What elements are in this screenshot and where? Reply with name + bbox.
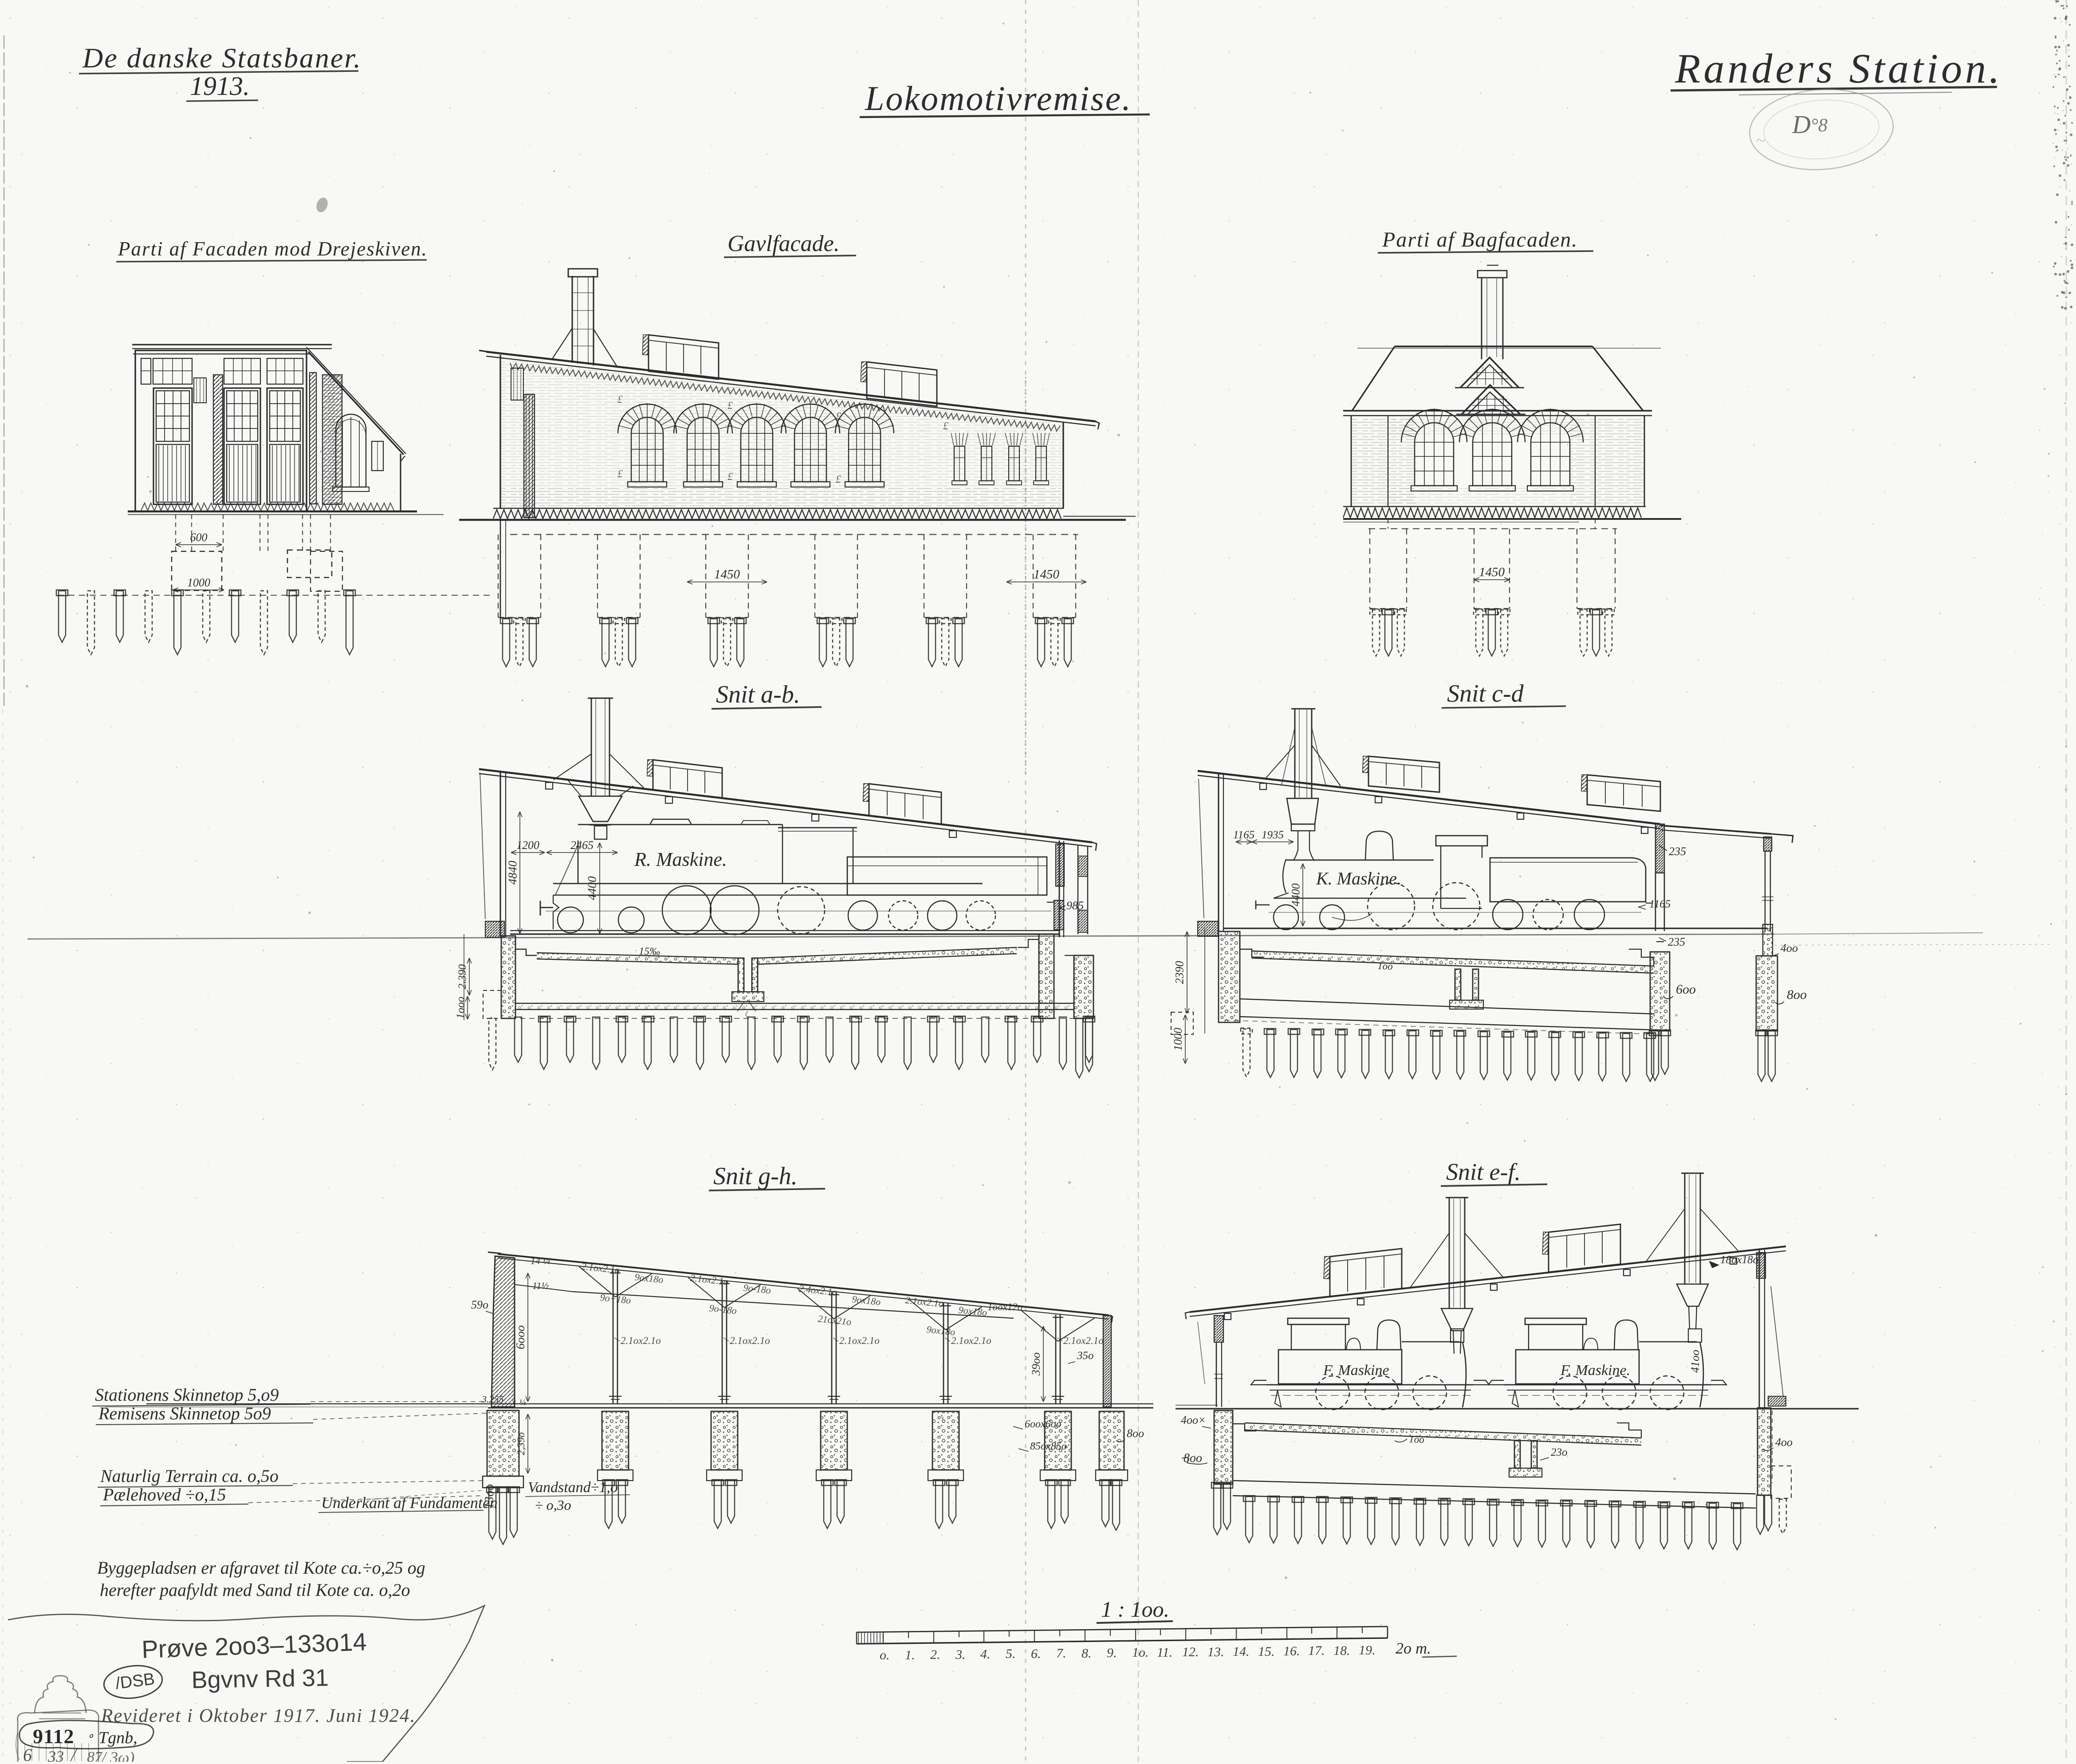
svg-text:39oo: 39oo: [1030, 1352, 1042, 1376]
svg-text:4oo: 4oo: [1781, 942, 1798, 955]
svg-text:1450: 1450: [714, 567, 740, 581]
svg-text:18.: 18.: [1333, 1643, 1350, 1658]
svg-text:35o: 35o: [1077, 1350, 1094, 1362]
svg-text:15‰: 15‰: [639, 946, 660, 958]
svg-text:7.: 7.: [1056, 1646, 1066, 1661]
svg-text:Snit g-h.: Snit g-h.: [713, 1163, 798, 1190]
svg-text:1913.: 1913.: [190, 71, 250, 101]
svg-text:85ox85o: 85ox85o: [1030, 1441, 1067, 1452]
svg-text:4.: 4.: [980, 1647, 991, 1662]
svg-text:6oox6oo: 6oox6oo: [1025, 1418, 1062, 1430]
svg-text:£: £: [617, 394, 623, 405]
svg-text:o.: o.: [880, 1648, 890, 1662]
svg-text:Stationens Skinnetop 5,o9: Stationens Skinnetop 5,o9: [95, 1385, 279, 1405]
svg-text:herefter paafyldt med Sand ti: herefter paafyldt med Sand til Kote ca. …: [100, 1580, 410, 1600]
svg-text:2.1ox2.1o: 2.1ox2.1o: [621, 1335, 661, 1346]
svg-text:Snit e-f.: Snit e-f.: [1446, 1159, 1521, 1185]
svg-text:8.: 8.: [1081, 1646, 1092, 1661]
svg-text:1000: 1000: [187, 576, 210, 589]
svg-text:11½: 11½: [532, 1280, 549, 1291]
svg-text:F. Maskine.: F. Maskine.: [1560, 1362, 1630, 1379]
svg-text:235: 235: [1669, 845, 1686, 858]
svg-text:2465: 2465: [570, 839, 594, 852]
svg-text:4400: 4400: [586, 876, 599, 900]
svg-text:£: £: [727, 400, 733, 412]
svg-text:1165: 1165: [1649, 898, 1671, 910]
svg-text:23o: 23o: [1551, 1446, 1568, 1458]
svg-text:1oo: 1oo: [1409, 1434, 1424, 1445]
svg-text:12.: 12.: [1182, 1645, 1199, 1659]
svg-text:Tgnb,: Tgnb,: [98, 1729, 138, 1747]
svg-text:235: 235: [1668, 935, 1685, 948]
svg-text:3.255: 3.255: [481, 1394, 504, 1405]
svg-text:2o m.: 2o m.: [1396, 1639, 1431, 1657]
svg-text:Parti af Facaden mod Drejeskiv: Parti af Facaden mod Drejeskiven.: [118, 238, 428, 260]
svg-text:£: £: [943, 420, 949, 432]
svg-text:6oo: 6oo: [1676, 982, 1696, 997]
svg-text:600: 600: [190, 531, 208, 544]
svg-text:11.: 11.: [1157, 1645, 1172, 1660]
svg-text:19.: 19.: [1359, 1643, 1376, 1658]
svg-text:17.: 17.: [1308, 1643, 1325, 1658]
svg-text:Byggepladsen er afgravet til K: Byggepladsen er afgravet til Kote ca.÷o,…: [97, 1558, 425, 1578]
svg-text:4840: 4840: [506, 860, 519, 885]
svg-text:Underkant af Fundamenten: Underkant af Fundamenten: [321, 1494, 498, 1512]
svg-text:D: D: [1792, 110, 1811, 139]
svg-text:2,39o: 2,39o: [515, 1432, 527, 1455]
svg-text:∘: ∘: [87, 1729, 94, 1742]
svg-text:8oo: 8oo: [1183, 1451, 1202, 1465]
svg-text:Randers Station.: Randers Station.: [1675, 46, 2003, 92]
svg-text:1ooo: 1ooo: [455, 997, 467, 1019]
svg-text:2.: 2.: [930, 1647, 940, 1662]
svg-text:2.1ox2.1o: 2.1ox2.1o: [1063, 1335, 1104, 1346]
svg-text:16.: 16.: [1283, 1644, 1300, 1658]
svg-text:÷ o,3o: ÷ o,3o: [535, 1497, 571, 1513]
svg-text:9.: 9.: [1107, 1646, 1117, 1660]
svg-text:5.: 5.: [1006, 1646, 1016, 1661]
svg-text:De danske Statsbaner.: De danske Statsbaner.: [82, 42, 362, 74]
svg-text:1 : 1oo.: 1 : 1oo.: [1101, 1597, 1169, 1622]
svg-text:R. Maskine.: R. Maskine.: [634, 849, 727, 870]
svg-text:15.: 15.: [1258, 1644, 1275, 1659]
svg-text:59o: 59o: [471, 1298, 488, 1311]
svg-text:Remisens Skinnetop 5o9: Remisens Skinnetop 5o9: [98, 1403, 271, 1423]
svg-text:13oo: 13oo: [483, 1484, 496, 1509]
svg-text:Bgvnv Rd 31: Bgvnv Rd 31: [191, 1665, 329, 1693]
svg-text:1o.: 1o.: [1132, 1645, 1149, 1660]
svg-text:8oo: 8oo: [1127, 1427, 1144, 1440]
svg-text:2.390: 2.390: [456, 964, 468, 989]
svg-text:2.1ox2.1o: 2.1ox2.1o: [839, 1335, 880, 1346]
svg-text:6.: 6.: [1031, 1646, 1041, 1661]
svg-text:14.: 14.: [1233, 1644, 1250, 1659]
svg-text:3ω): 3ω): [110, 1748, 134, 1762]
svg-text:1450: 1450: [1034, 567, 1060, 581]
svg-text:Vandstand÷1,o: Vandstand÷1,o: [528, 1479, 618, 1496]
svg-text:°8: °8: [1811, 115, 1828, 136]
svg-text:1.: 1.: [905, 1648, 915, 1662]
svg-text:1450: 1450: [1479, 565, 1505, 579]
svg-text:Parti af Bagfacaden.: Parti af Bagfacaden.: [1382, 228, 1578, 251]
svg-text:33: 33: [47, 1748, 64, 1762]
svg-text:Pælehoved ÷o,15: Pælehoved ÷o,15: [102, 1485, 226, 1505]
svg-text:18ox18o: 18ox18o: [1720, 1254, 1758, 1266]
svg-text:1000: 1000: [1172, 1028, 1184, 1051]
svg-text:13.: 13.: [1207, 1645, 1224, 1659]
svg-text:9112: 9112: [33, 1725, 74, 1748]
svg-text:£: £: [836, 411, 841, 422]
svg-text:87/: 87/: [87, 1749, 108, 1762]
svg-text:6: 6: [23, 1745, 32, 1762]
svg-text:1165: 1165: [1233, 829, 1254, 841]
svg-text:£: £: [617, 468, 623, 480]
svg-text:Naturlig Terrain ca. o,5o: Naturlig Terrain ca. o,5o: [100, 1466, 279, 1486]
svg-text:Revideret i Oktober 1917. J: Revideret i Oktober 1917. Juni 1924.: [101, 1705, 416, 1726]
svg-text:Snit a-b.: Snit a-b.: [716, 681, 800, 708]
svg-text:3.: 3.: [955, 1647, 966, 1662]
svg-text:Lokomotivremise.: Lokomotivremise.: [865, 79, 1132, 118]
svg-text:2.1ox2.1o: 2.1ox2.1o: [951, 1335, 991, 1346]
svg-text:4400: 4400: [1290, 884, 1302, 907]
svg-text:6ooo: 6ooo: [514, 1325, 527, 1349]
svg-text:4oo: 4oo: [1775, 1436, 1793, 1449]
svg-text:£: £: [836, 474, 841, 485]
svg-text:1oox12o: 1oox12o: [987, 1301, 1022, 1312]
svg-text:~: ~: [1756, 130, 1765, 150]
svg-text:1oo: 1oo: [1377, 960, 1393, 972]
svg-text:8oo: 8oo: [1787, 987, 1807, 1002]
svg-text:2.1ox2.1o: 2.1ox2.1o: [730, 1335, 770, 1346]
svg-text:1935: 1935: [1262, 829, 1284, 841]
svg-text:× ¼: × ¼: [511, 1398, 526, 1407]
svg-text:K. Maskine.: K. Maskine.: [1316, 868, 1401, 888]
svg-text:Snit c-d: Snit c-d: [1447, 680, 1524, 707]
svg-text:41oo: 41oo: [1689, 1350, 1702, 1373]
svg-text:14 ¼: 14 ¼: [531, 1255, 550, 1266]
svg-text:F. Maskine: F. Maskine: [1323, 1362, 1389, 1379]
svg-text:4oo×: 4oo×: [1181, 1414, 1206, 1426]
svg-text:2390: 2390: [1173, 961, 1186, 984]
svg-text:Gavlfacade.: Gavlfacade.: [727, 231, 840, 256]
svg-text:£: £: [727, 471, 733, 483]
